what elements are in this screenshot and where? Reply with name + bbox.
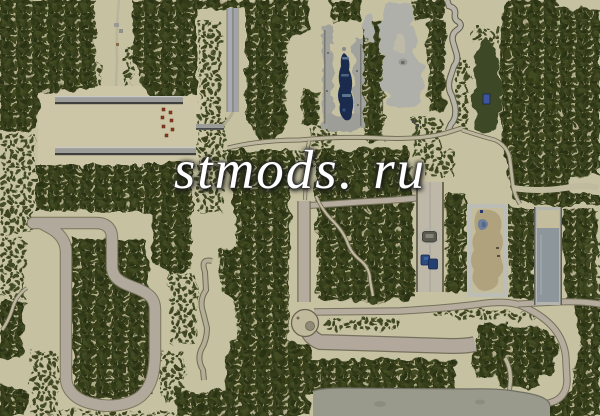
svg-text:stmods. ru: stmods. ru [174,139,426,200]
